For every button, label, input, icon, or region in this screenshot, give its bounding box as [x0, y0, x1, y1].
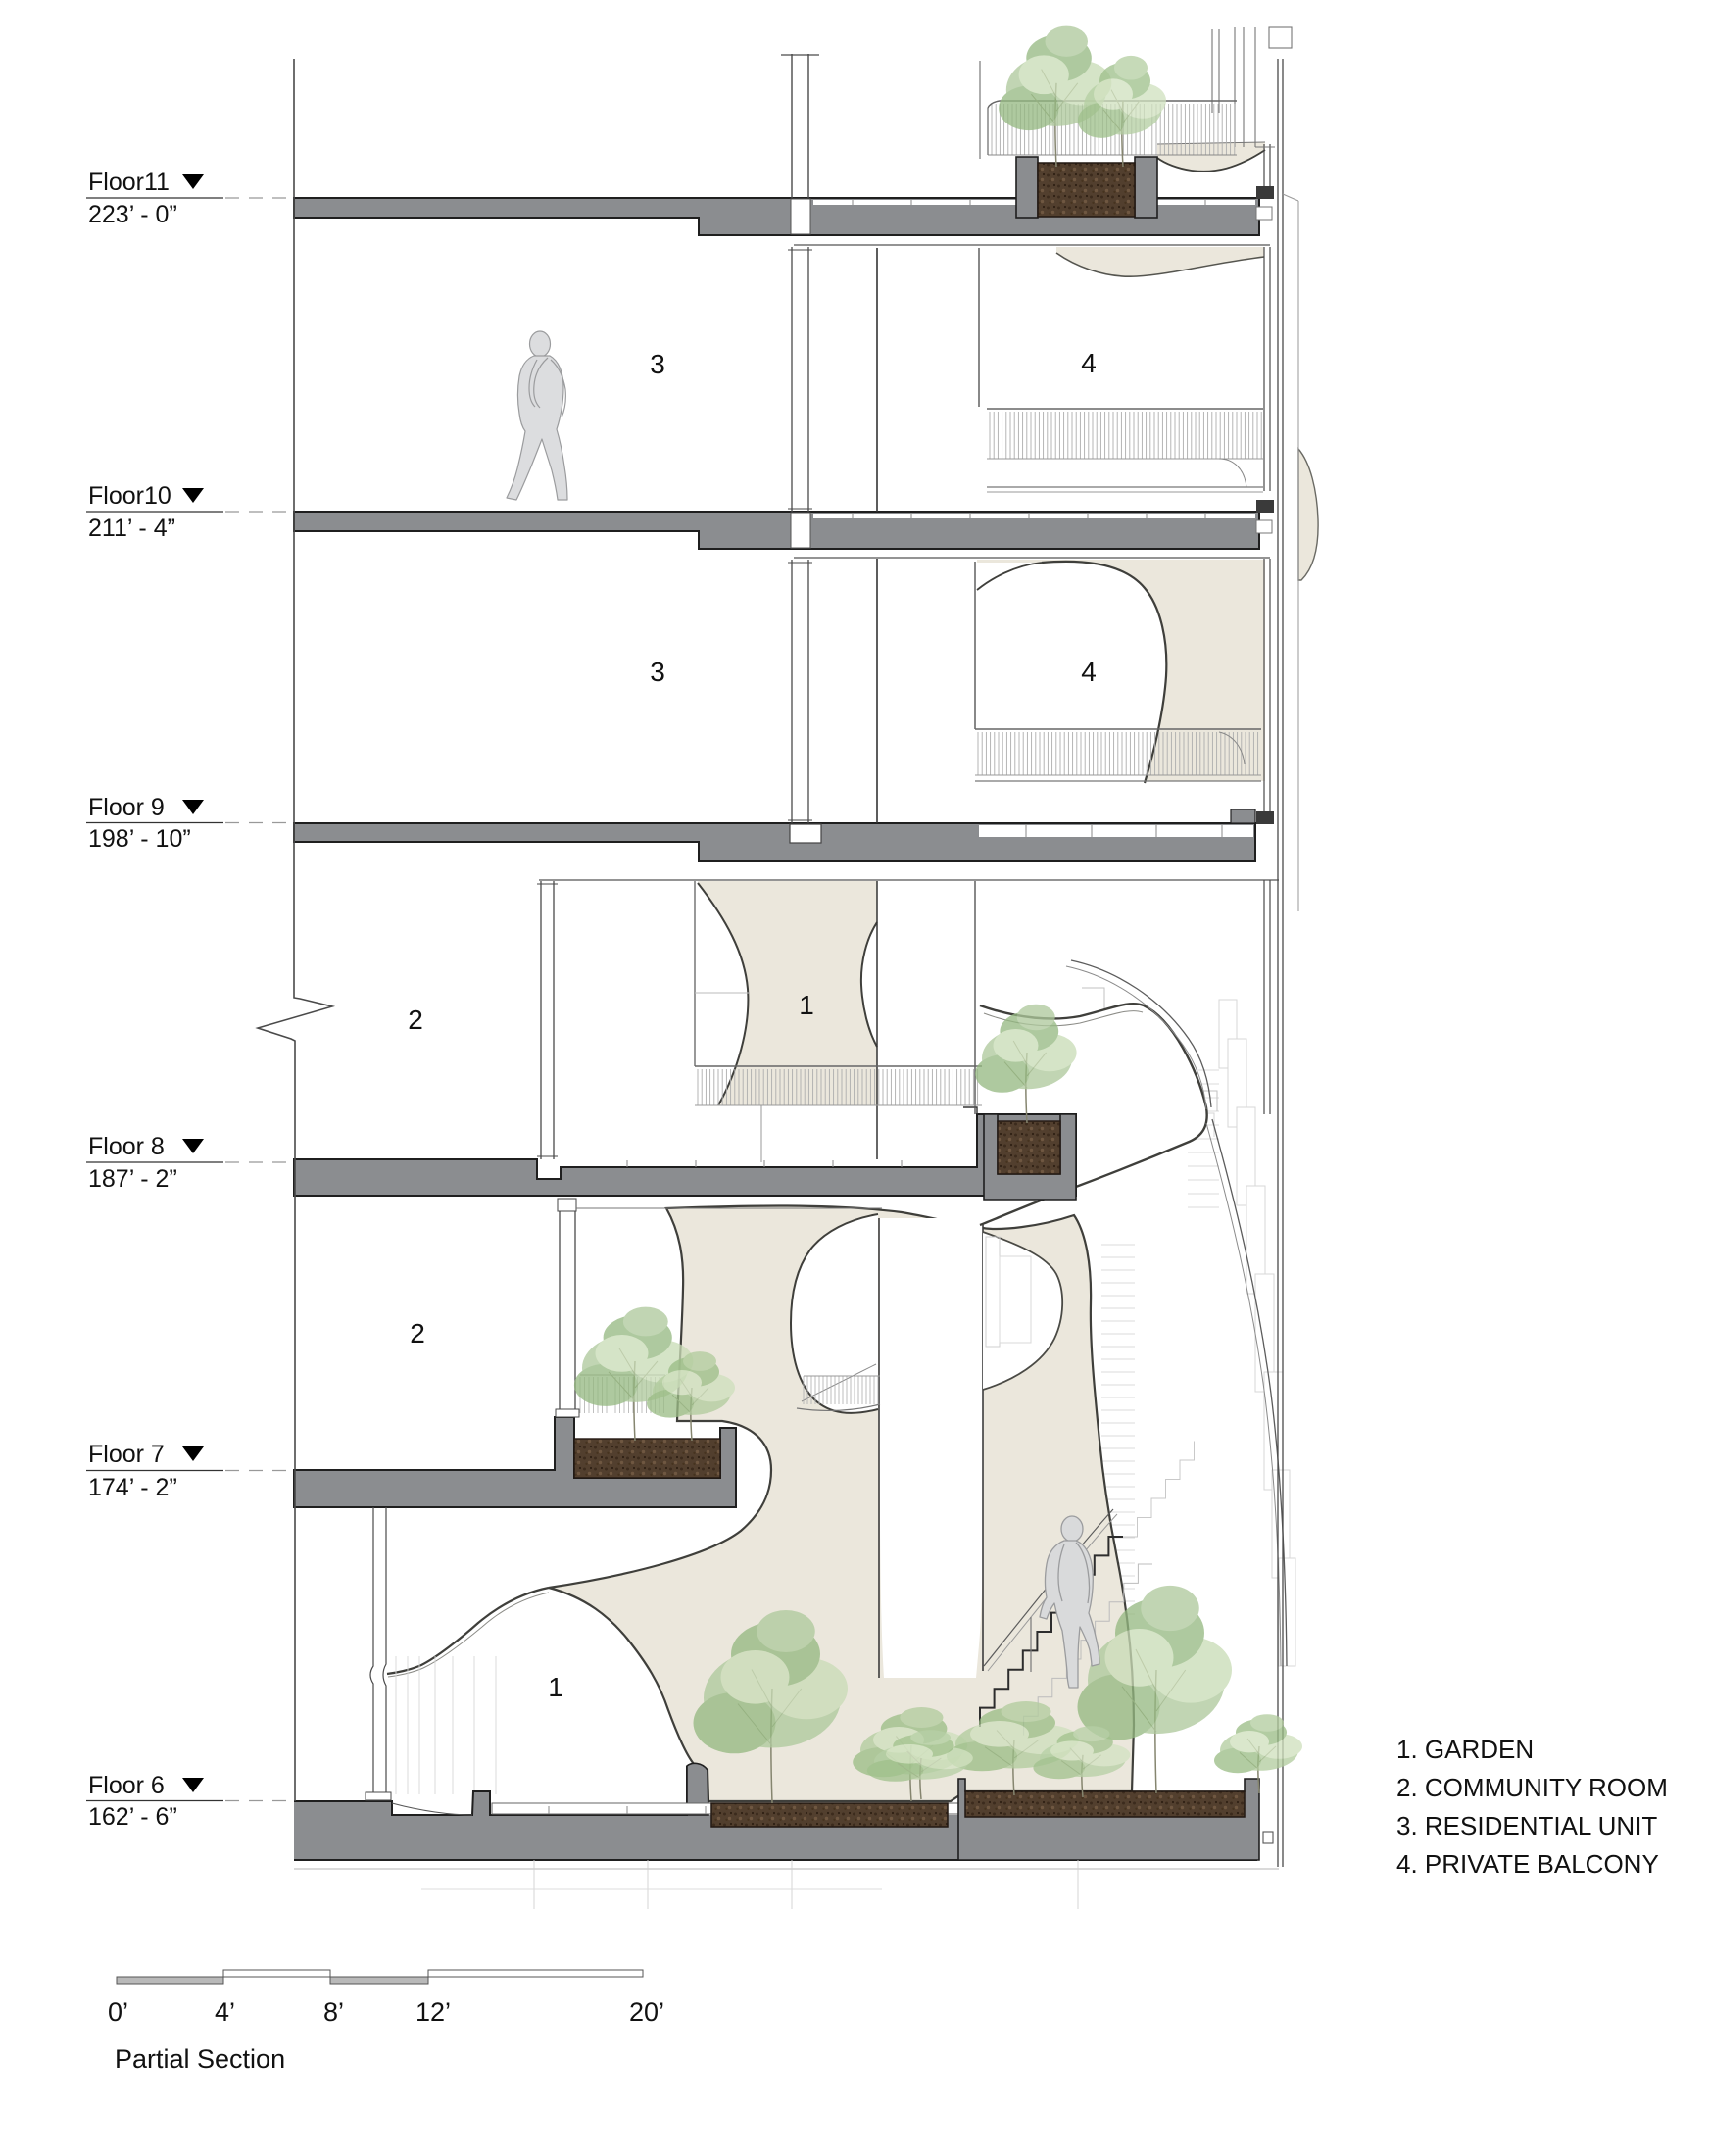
svg-text:1: 1 [799, 990, 814, 1020]
svg-text:174’ - 2”: 174’ - 2” [88, 1474, 177, 1501]
svg-text:2: 2 [410, 1318, 425, 1348]
svg-text:198’ - 10”: 198’ - 10” [88, 825, 191, 853]
svg-text:20’: 20’ [629, 1997, 664, 2027]
svg-text:4: 4 [1081, 348, 1097, 378]
svg-text:2. COMMUNITY ROOM: 2. COMMUNITY ROOM [1396, 1773, 1668, 1802]
svg-text:162’ - 6”: 162’ - 6” [88, 1803, 177, 1831]
svg-text:3: 3 [650, 349, 665, 379]
svg-text:Floor 6: Floor 6 [88, 1772, 165, 1799]
svg-text:4. PRIVATE BALCONY: 4. PRIVATE BALCONY [1396, 1849, 1659, 1879]
svg-text:Floor 9: Floor 9 [88, 794, 165, 821]
svg-text:0’: 0’ [108, 1997, 128, 2027]
svg-text:3. RESIDENTIAL UNIT: 3. RESIDENTIAL UNIT [1396, 1811, 1657, 1840]
svg-text:Floor 8: Floor 8 [88, 1133, 165, 1160]
svg-text:187’ - 2”: 187’ - 2” [88, 1165, 177, 1193]
svg-text:223’ - 0”: 223’ - 0” [88, 201, 177, 228]
svg-text:Floor11: Floor11 [88, 169, 170, 196]
svg-text:Floor10: Floor10 [88, 482, 171, 510]
svg-text:3: 3 [650, 657, 665, 687]
svg-text:Floor 7: Floor 7 [88, 1441, 165, 1468]
svg-text:211’ - 4”: 211’ - 4” [88, 514, 175, 542]
svg-text:1. GARDEN: 1. GARDEN [1396, 1735, 1534, 1764]
svg-text:1: 1 [548, 1672, 563, 1702]
svg-text:Partial Section: Partial Section [115, 2044, 285, 2074]
svg-text:4’: 4’ [215, 1997, 235, 2027]
svg-text:8’: 8’ [323, 1997, 344, 2027]
svg-text:12’: 12’ [415, 1997, 451, 2027]
svg-text:2: 2 [408, 1004, 423, 1035]
svg-text:4: 4 [1081, 657, 1097, 687]
